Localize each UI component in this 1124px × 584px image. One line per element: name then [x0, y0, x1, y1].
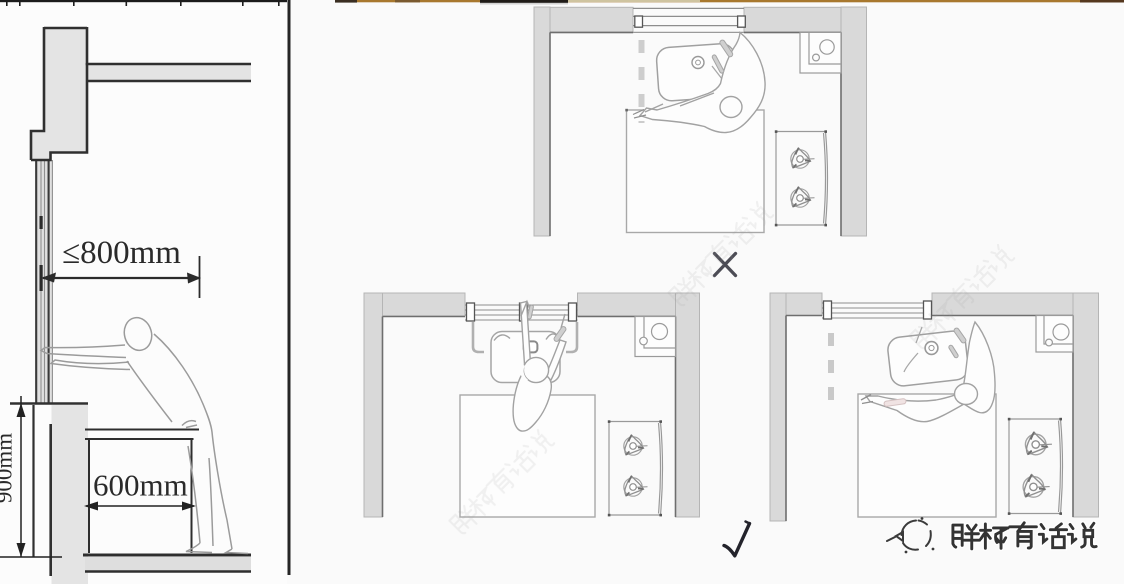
svg-text:600mm: 600mm: [93, 468, 188, 503]
svg-text:900mm: 900mm: [0, 433, 16, 503]
svg-text:≤800mm: ≤800mm: [62, 235, 181, 271]
